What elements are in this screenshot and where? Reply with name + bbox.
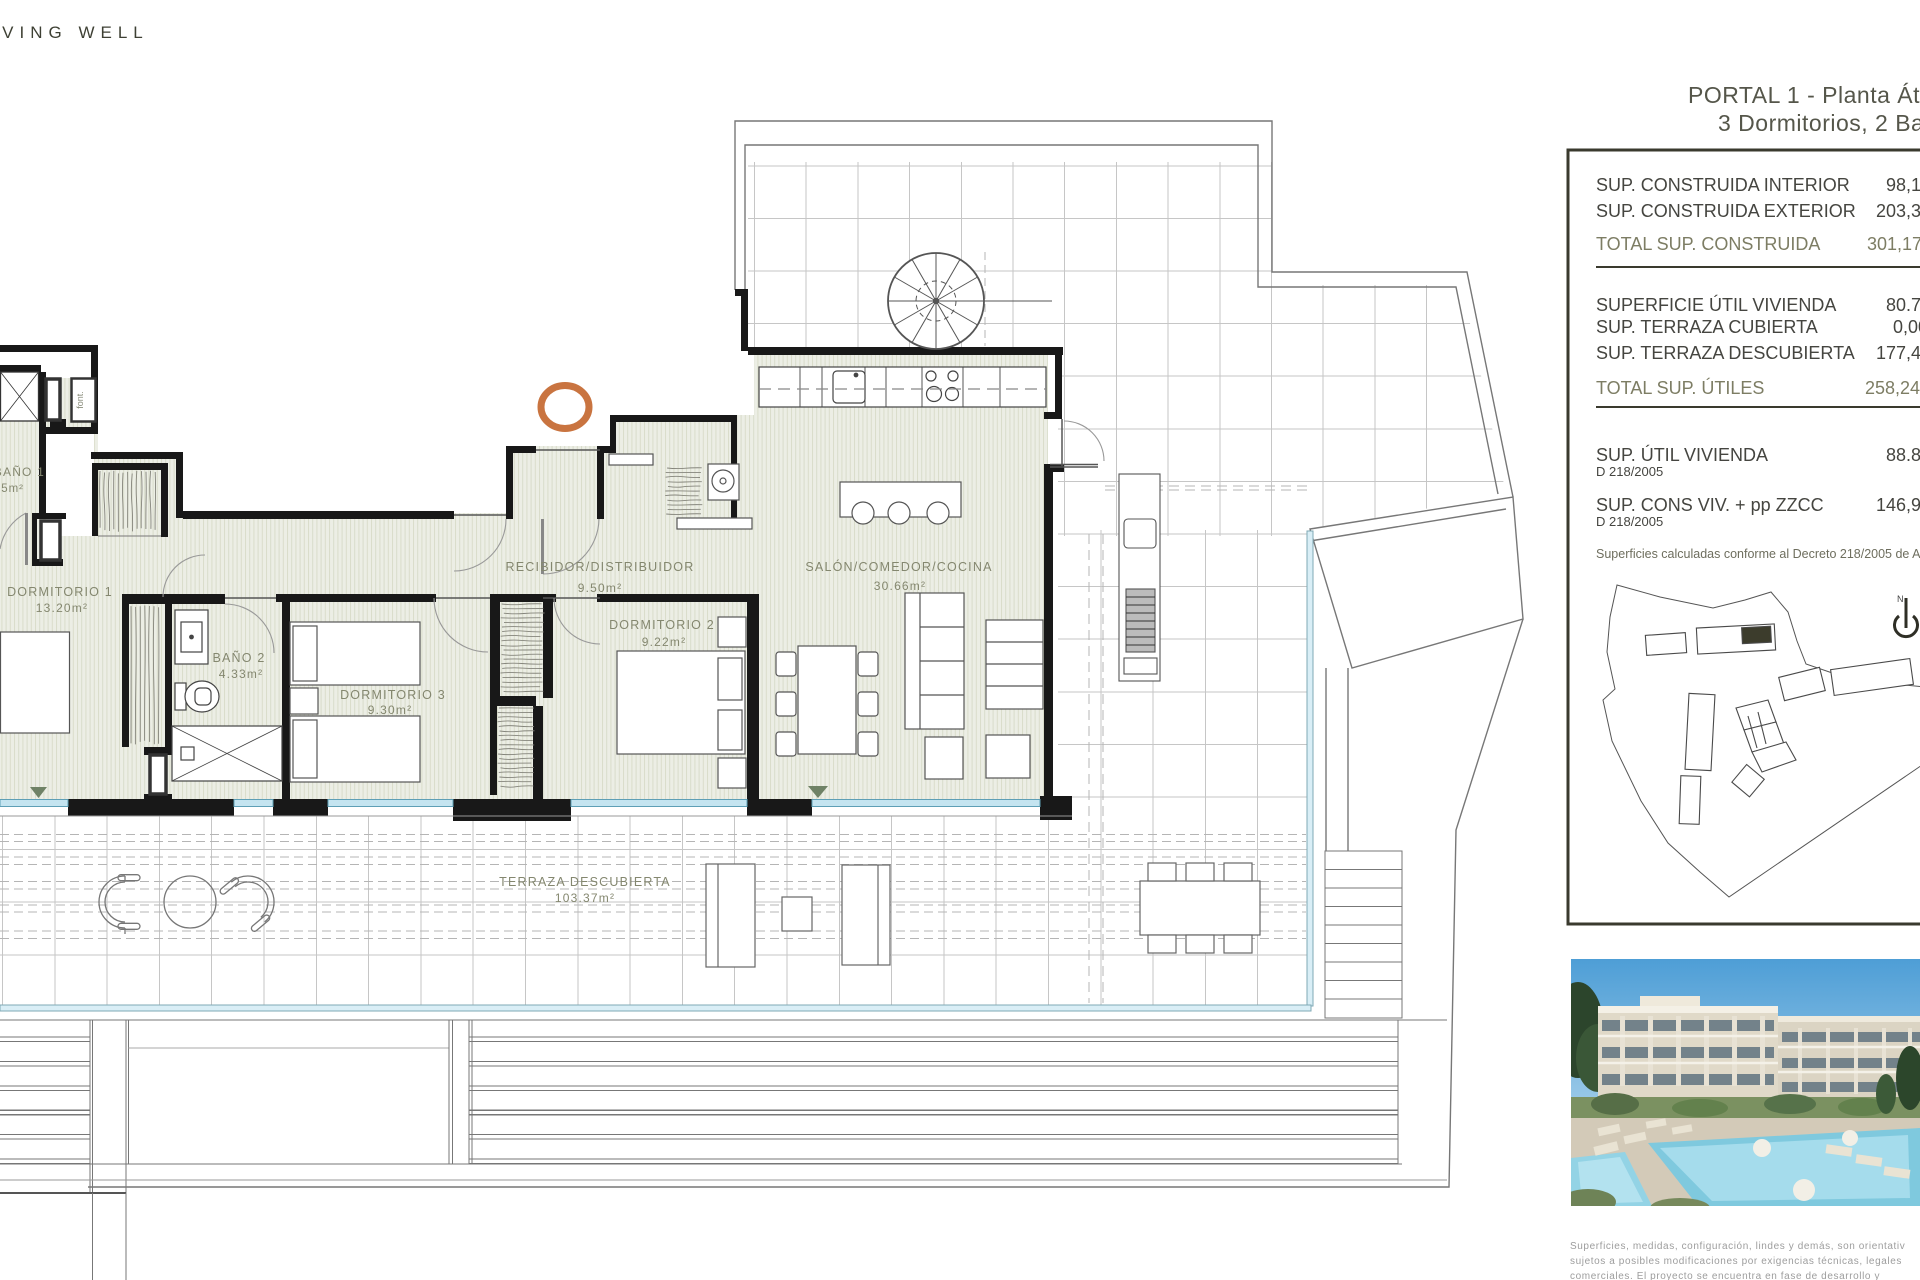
- svg-text:103.37m²: 103.37m²: [555, 891, 615, 905]
- svg-text:9.50m²: 9.50m²: [578, 581, 623, 595]
- svg-text:DORMITORIO 2: DORMITORIO 2: [609, 618, 715, 632]
- svg-text:30.66m²: 30.66m²: [874, 579, 926, 593]
- svg-text:RECIBIDOR/DISTRIBUIDOR: RECIBIDOR/DISTRIBUIDOR: [506, 560, 695, 574]
- svg-text:SUP. CONSTRUIDA INTERIOR: SUP. CONSTRUIDA INTERIOR: [1596, 175, 1850, 195]
- svg-text:258,24: 258,24: [1865, 378, 1920, 398]
- svg-text:SUP. ÚTIL VIVIENDA: SUP. ÚTIL VIVIENDA: [1596, 444, 1768, 465]
- svg-text:BAÑO 2: BAÑO 2: [212, 651, 265, 665]
- svg-text:Superficies, medidas, configur: Superficies, medidas, configuración, lin…: [1570, 1241, 1905, 1252]
- svg-text:BAÑO 1: BAÑO 1: [0, 465, 45, 479]
- svg-text:0,00: 0,00: [1893, 317, 1920, 337]
- svg-text:98,18: 98,18: [1886, 175, 1920, 195]
- svg-text:D 218/2005: D 218/2005: [1596, 514, 1663, 529]
- svg-text:SUP. TERRAZA DESCUBIERTA: SUP. TERRAZA DESCUBIERTA: [1596, 343, 1855, 363]
- svg-text:13.20m²: 13.20m²: [36, 601, 88, 615]
- svg-text:SUP. CONSTRUIDA EXTERIOR: SUP. CONSTRUIDA EXTERIOR: [1596, 201, 1856, 221]
- svg-text:D 218/2005: D 218/2005: [1596, 464, 1663, 479]
- svg-text:sujetos a posibles modificacio: sujetos a posibles modificaciones por ex…: [1570, 1256, 1902, 1267]
- svg-text:TERRAZA DESCUBIERTA: TERRAZA DESCUBIERTA: [499, 875, 671, 889]
- svg-text:4.33m²: 4.33m²: [219, 667, 264, 681]
- svg-text:TOTAL SUP. ÚTILES: TOTAL SUP. ÚTILES: [1596, 377, 1764, 398]
- svg-text:80.75: 80.75: [1886, 295, 1920, 315]
- svg-text:203,31: 203,31: [1876, 201, 1920, 221]
- svg-text:PORTAL 1 - Planta Ático: PORTAL 1 - Planta Ático: [1688, 82, 1920, 108]
- svg-text:177,49: 177,49: [1876, 343, 1920, 363]
- svg-text:N: N: [1897, 594, 1904, 604]
- svg-text:TOTAL SUP. CONSTRUIDA: TOTAL SUP. CONSTRUIDA: [1596, 234, 1820, 254]
- svg-text:DORMITORIO 1: DORMITORIO 1: [7, 585, 113, 599]
- svg-text:DORMITORIO 3: DORMITORIO 3: [340, 688, 446, 702]
- svg-text:SUP. CONS VIV. + pp ZZCC: SUP. CONS VIV. + pp ZZCC: [1596, 495, 1824, 515]
- svg-text:301,17: 301,17: [1867, 234, 1920, 254]
- svg-text:9.30m²: 9.30m²: [368, 703, 413, 717]
- svg-text:9.22m²: 9.22m²: [642, 635, 687, 649]
- svg-text:SUP. TERRAZA CUBIERTA: SUP. TERRAZA CUBIERTA: [1596, 317, 1818, 337]
- svg-text:8.15m²: 8.15m²: [0, 483, 24, 495]
- svg-text:88.81: 88.81: [1886, 445, 1920, 465]
- svg-text:SALÓN/COMEDOR/COCINA: SALÓN/COMEDOR/COCINA: [805, 559, 992, 574]
- svg-text:LIVING WELL: LIVING WELL: [0, 23, 149, 42]
- svg-text:3 Dormitorios, 2 Baños: 3 Dormitorios, 2 Baños: [1718, 110, 1920, 136]
- svg-text:146,95: 146,95: [1876, 495, 1920, 515]
- svg-text:comerciales. El proyecto se en: comerciales. El proyecto se encuentra en…: [1570, 1271, 1880, 1280]
- svg-text:SUPERFICIE ÚTIL VIVIENDA: SUPERFICIE ÚTIL VIVIENDA: [1596, 294, 1836, 315]
- svg-text:Superficies calculadas conform: Superficies calculadas conforme al Decre…: [1596, 547, 1920, 561]
- svg-text:font.: font.: [75, 391, 85, 409]
